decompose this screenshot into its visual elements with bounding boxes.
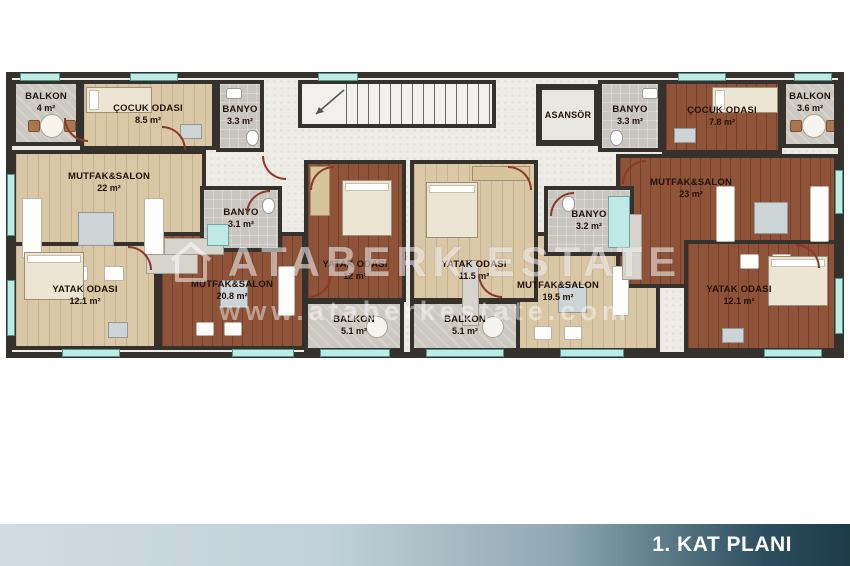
stair-steps [346,84,492,124]
room-name: MUTFAK&SALON [191,280,273,291]
room-name: BALKON [333,315,375,326]
window [7,280,15,336]
apt1-kids-room: ÇOCUK ODASI 8.5 m² [80,80,216,150]
room-area: 12.1 m² [69,296,100,307]
bed-furniture [426,182,478,238]
room-name: MUTFAK&SALON [517,281,599,292]
window [835,170,843,214]
room-area: 3.6 m² [797,103,823,114]
sofa-furniture [278,266,295,316]
room-name: BANYO [571,210,606,221]
room-area: 3.2 m² [576,221,602,232]
sofa-furniture [810,186,829,242]
kitchen-counter [146,254,198,274]
chair-furniture [196,322,214,336]
window [560,349,624,357]
window [318,73,358,81]
balcony-chair [790,120,802,132]
room-area: 22 m² [97,183,121,194]
sofa-furniture [22,198,42,258]
room-name: YATAK ODASI [322,260,387,271]
chair-furniture [104,266,124,281]
window [130,73,178,81]
apt4-balcony-upper: BALKON 3.6 m² [782,80,838,148]
room-area: 3.3 m² [227,116,253,127]
window [794,73,832,81]
sofa-furniture [144,198,164,258]
balcony-table [802,114,826,138]
sofa-furniture [716,186,735,242]
shower-tub [608,196,630,248]
window [20,73,60,81]
apt3-bathroom: BANYO 3.2 m² [544,186,634,256]
room-name: YATAK ODASI [706,285,771,296]
room-area: 23 m² [679,189,703,200]
window [7,174,15,236]
chair-furniture [534,326,552,340]
window [426,349,504,357]
stair-direction-arrow [304,84,348,124]
desk-furniture [108,322,128,338]
window [835,278,843,334]
chair-furniture [740,254,759,269]
room-area: 19.5 m² [542,292,573,303]
floor-plan-title: 1. KAT PLANI [652,524,792,566]
room-area: 4 m² [37,103,56,114]
apt2-balcony: BALKON 5.1 m² [304,300,404,352]
window [764,349,822,357]
room-area: 5.1 m² [452,326,478,337]
chair-furniture [564,326,582,340]
coffee-table [78,212,114,246]
apt4-bathroom-upper: BANYO 3.3 m² [598,80,662,152]
room-area: 8.5 m² [135,115,161,126]
floor-plan-image: MUTFAK&SALON 22 m² MUTFAK&SALON 20.8 m² … [0,0,850,566]
toilet-fixture [610,130,623,146]
elevator: ASANSÖR [536,84,600,146]
room-area: 12 m² [343,271,367,282]
room-name: ÇOCUK ODASI [113,104,183,115]
apt4-kids-room: ÇOCUK ODASI 7.8 m² [662,80,782,154]
door-arc [262,156,286,180]
room-area: 3.3 m² [617,116,643,127]
room-name: YATAK ODASI [441,260,506,271]
room-name: ÇOCUK ODASI [687,106,757,117]
footer-bar: 1. KAT PLANI [0,524,850,566]
room-area: 12.1 m² [723,296,754,307]
coffee-table [754,202,788,234]
apt1-bathroom-upper: BANYO 3.3 m² [216,80,264,152]
room-name: YATAK ODASI [52,285,117,296]
room-area: 7.8 m² [709,117,735,128]
room-name: MUTFAK&SALON [650,178,732,189]
desk-furniture [722,328,744,343]
room-area: 3.1 m² [228,219,254,230]
bed-furniture [342,180,392,236]
window [320,349,390,357]
elevator-label: ASANSÖR [545,110,591,120]
desk-furniture [674,128,696,143]
toilet-fixture [246,130,259,146]
room-area: 5.1 m² [341,326,367,337]
sink-fixture [226,88,242,99]
window [678,73,726,81]
balcony-chair [826,120,838,132]
room-name: BALKON [25,92,67,103]
window [232,349,294,357]
room-name: MUTFAK&SALON [68,172,150,183]
chair-furniture [224,322,242,336]
room-name: BANYO [222,105,257,116]
room-name: BALKON [789,92,831,103]
desk-furniture [180,124,202,139]
room-name: BANYO [612,105,647,116]
sink-fixture [642,88,658,99]
apt1-balcony: BALKON 4 m² [12,80,80,146]
room-name: BALKON [444,315,486,326]
staircase [298,80,496,128]
room-area: 20.8 m² [216,291,247,302]
balcony-chair [28,120,40,132]
shower-tub [207,224,229,246]
building-plan: MUTFAK&SALON 22 m² MUTFAK&SALON 20.8 m² … [6,72,844,358]
window [62,349,120,357]
balcony-table [40,114,64,138]
